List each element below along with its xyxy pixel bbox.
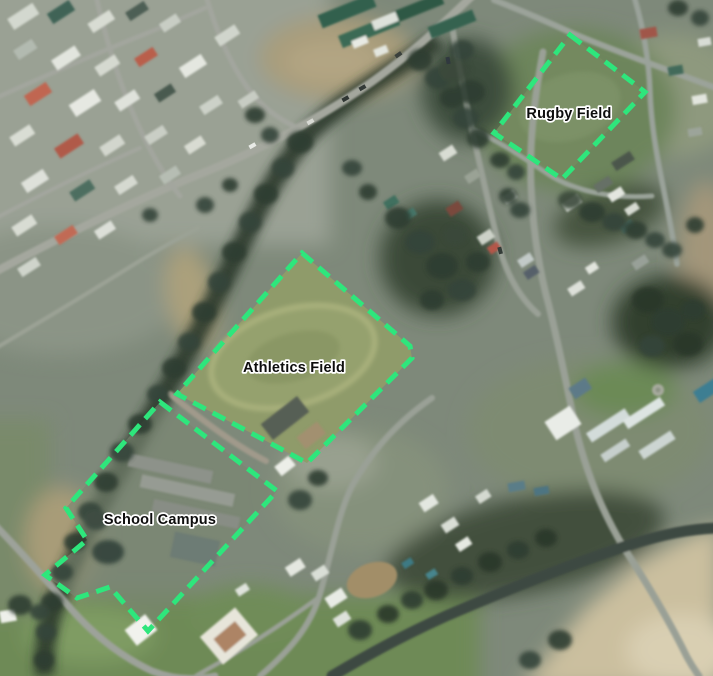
aerial-basemap (0, 0, 713, 676)
school-campus-label: School Campus (104, 512, 216, 528)
athletics-field-label: Athletics Field (243, 360, 345, 376)
map-canvas[interactable]: Rugby Field Athletics Field School Campu… (0, 0, 713, 676)
map-viewport[interactable]: Rugby Field Athletics Field School Campu… (0, 0, 713, 676)
rugby-field-label: Rugby Field (526, 106, 611, 122)
